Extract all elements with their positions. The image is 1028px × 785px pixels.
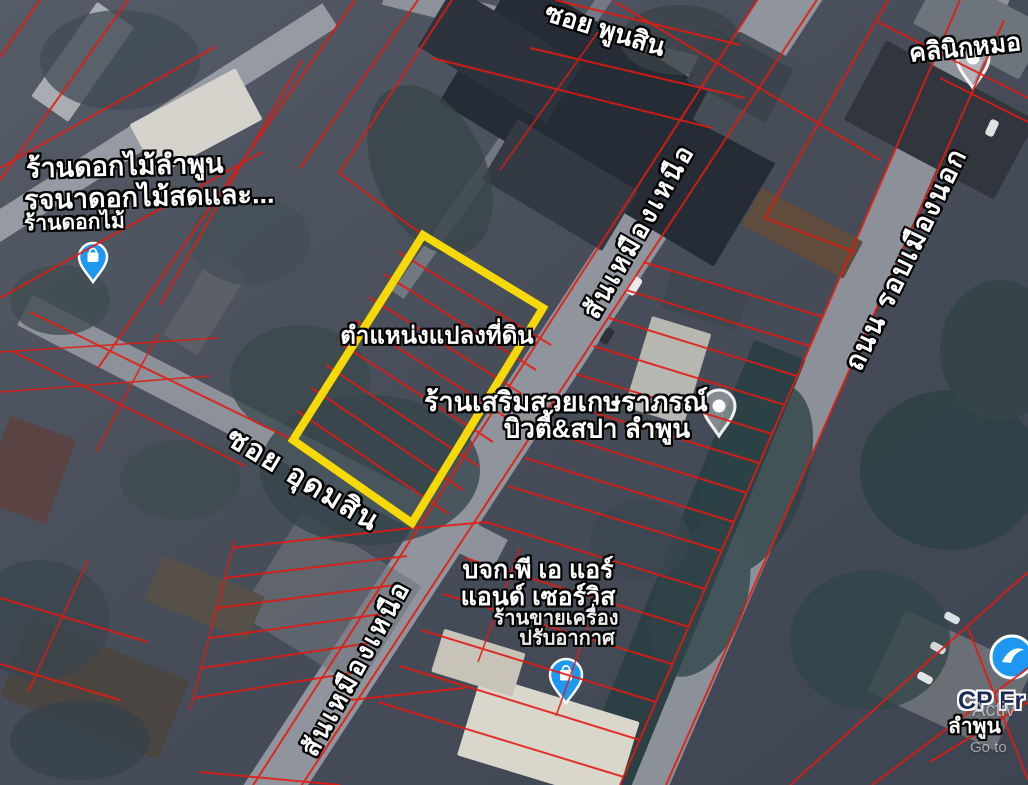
satellite-imagery [0, 0, 1028, 785]
cp-store-poi-pin[interactable] [985, 630, 1028, 684]
bag-body-icon [560, 670, 572, 681]
air-service-poi-pin[interactable] [543, 652, 589, 710]
satellite-map-view: ซอย พูนสิน คลินิกหมอ ร้านดอกไม้ลำพูน รจน… [0, 0, 1028, 785]
beauty-salon-place-pin[interactable] [696, 383, 742, 445]
pin-dot-icon [967, 52, 980, 65]
flower-shop-poi-pin[interactable] [72, 235, 114, 289]
bag-body-icon [88, 253, 99, 263]
clinic-place-pin[interactable] [950, 35, 996, 97]
pin-dot-icon [713, 400, 726, 413]
white-place-pin-icon [703, 390, 735, 436]
white-place-pin-icon [957, 42, 989, 88]
